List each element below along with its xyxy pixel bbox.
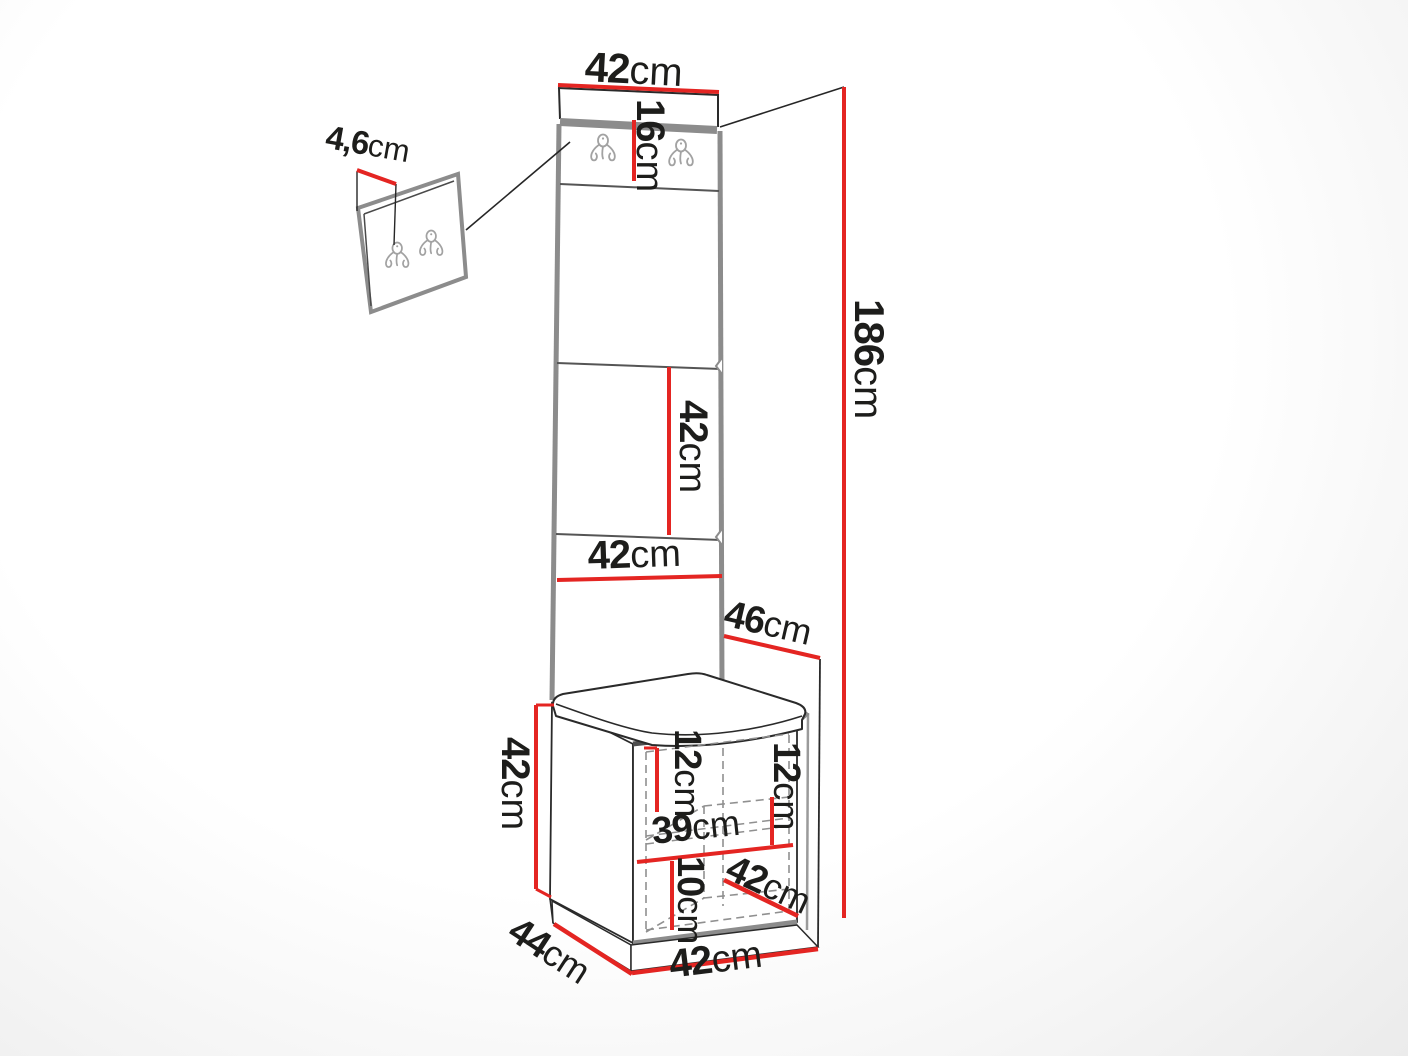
dim-shelf-width: 39cm [650, 805, 742, 850]
dim-bottom-shelf-height: 10cm [672, 856, 708, 944]
dim-base-width: 42cm [667, 935, 764, 984]
back-panel-edge [818, 659, 820, 947]
dim-panel-mid-width: 42cm [587, 534, 681, 575]
dim-bench-height: 42cm [496, 737, 534, 830]
dim-hook-strip-height: 16cm [631, 99, 669, 192]
dimension-line-hook-plate-thickness [357, 170, 396, 184]
joint-notch-2 [716, 529, 722, 545]
dim-inner-right-height: 12cm [768, 742, 804, 830]
joint-notch-1 [716, 358, 722, 374]
diagram-canvas: 42cm 16cm 4,6cm 186cm 42cm 42cm 46cm 42c… [0, 0, 1408, 1056]
dimension-line-panel-mid-width [557, 576, 722, 580]
panel-joint-1 [557, 363, 721, 369]
dim-inner-left-height: 12cm [669, 729, 705, 817]
panel-right-edge [720, 131, 722, 690]
hook-plate [358, 174, 466, 312]
coat-hook-icon [591, 135, 615, 161]
dim-panel-segment-height: 42cm [674, 400, 712, 493]
dim-panel-top-width: 42cm [584, 47, 684, 93]
coat-hook-icon [669, 140, 693, 166]
panel-left-edge [552, 124, 559, 700]
total-height-leader [720, 87, 844, 127]
hook-plate-detail [358, 174, 466, 312]
hook-plate-leader [466, 142, 570, 230]
dim-total-height: 186cm [848, 299, 889, 419]
